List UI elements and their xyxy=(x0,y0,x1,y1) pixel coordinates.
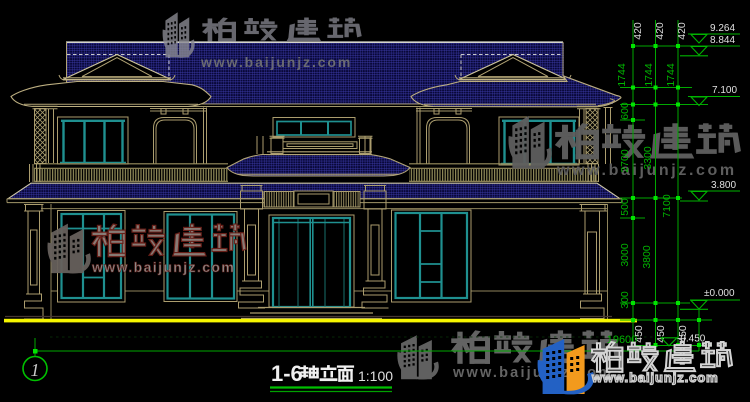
svg-text:1-6: 1-6 xyxy=(271,361,303,386)
svg-text:420: 420 xyxy=(676,22,688,40)
svg-text:1744: 1744 xyxy=(643,63,655,87)
svg-text:7100: 7100 xyxy=(661,194,673,218)
svg-text:300: 300 xyxy=(619,291,631,309)
svg-text:±0.000: ±0.000 xyxy=(704,288,735,299)
svg-text:3300: 3300 xyxy=(642,146,654,170)
svg-text:420: 420 xyxy=(654,22,666,40)
svg-text:9.264: 9.264 xyxy=(710,23,735,34)
svg-text:2700: 2700 xyxy=(619,149,631,173)
svg-text:600: 600 xyxy=(619,102,631,120)
svg-text:www.baijunjz.com: www.baijunjz.com xyxy=(91,259,235,275)
svg-text:500: 500 xyxy=(619,198,631,216)
svg-text:3800: 3800 xyxy=(641,245,653,269)
svg-text:3000: 3000 xyxy=(619,243,631,267)
svg-text:7.100: 7.100 xyxy=(712,85,737,96)
svg-text:1744: 1744 xyxy=(616,63,628,87)
svg-text:3.800: 3.800 xyxy=(711,180,736,191)
svg-text:1: 1 xyxy=(31,360,40,380)
svg-text:www.baijunjz.com: www.baijunjz.com xyxy=(200,54,352,70)
svg-text:420: 420 xyxy=(632,22,644,40)
svg-text:1:100: 1:100 xyxy=(358,368,393,384)
svg-text:1744: 1744 xyxy=(665,63,677,87)
svg-text:8.844: 8.844 xyxy=(710,35,735,46)
svg-text:450: 450 xyxy=(655,325,667,343)
svg-text:www.baijunjz.com: www.baijunjz.com xyxy=(591,370,719,385)
